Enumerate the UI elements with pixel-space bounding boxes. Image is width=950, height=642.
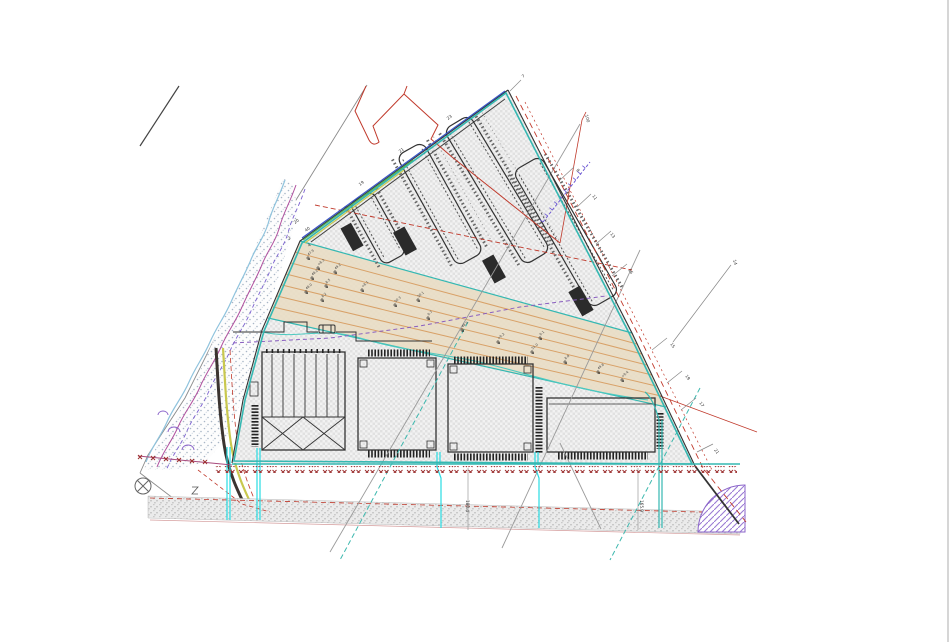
survey-dot-icon (309, 259, 310, 260)
boundary-point-label: 16 (627, 268, 634, 276)
survey-dot-icon (463, 331, 464, 332)
boundary-point-label: 19 (684, 374, 691, 382)
purple-hatch-zone (698, 485, 745, 532)
survey-dot-icon (419, 301, 420, 302)
survey-dot-icon (541, 339, 542, 340)
survey-dot-icon (599, 373, 600, 374)
survey-dot-icon (327, 287, 328, 288)
boundary-point-label: 13 (609, 232, 616, 240)
survey-dot-icon (623, 381, 624, 382)
boundary-point-label: 23 (446, 113, 454, 120)
survey-dot-icon (336, 273, 337, 274)
survey-dot-icon (323, 301, 324, 302)
boundary-point-label: 165.9 (639, 500, 644, 512)
survey-dot-icon (499, 343, 500, 344)
boundary-point-label: 14 (732, 259, 738, 266)
boundary-point-label: 21 (398, 146, 406, 153)
manhole-icon (135, 478, 151, 494)
survey-dot-icon (319, 269, 320, 270)
boundary-point-label: 15 (669, 342, 676, 350)
site-plan-svg: 723211991113161519172114100204024180.416… (0, 0, 950, 642)
boundary-point-label: 21 (713, 448, 720, 456)
boundary-point-label: 17 (698, 401, 705, 409)
survey-dot-icon (313, 279, 314, 280)
survey-dot-icon (363, 291, 364, 292)
boundary-point-label: 19 (358, 179, 366, 186)
boundary-point-label: 100 (584, 114, 591, 123)
survey-dot-icon (429, 319, 430, 320)
site-plan-canvas: 723211991113161519172114100204024180.416… (0, 0, 950, 642)
boundary-point-label: 180.4 (465, 500, 470, 512)
survey-dot-icon (396, 306, 397, 307)
survey-dot-icon (307, 293, 308, 294)
survey-dot-icon (533, 353, 534, 354)
boundary-point-label: 7 (521, 73, 526, 79)
bottom-road (148, 496, 740, 535)
survey-dot-icon (566, 363, 567, 364)
boundary-point-label: 11 (591, 194, 598, 202)
